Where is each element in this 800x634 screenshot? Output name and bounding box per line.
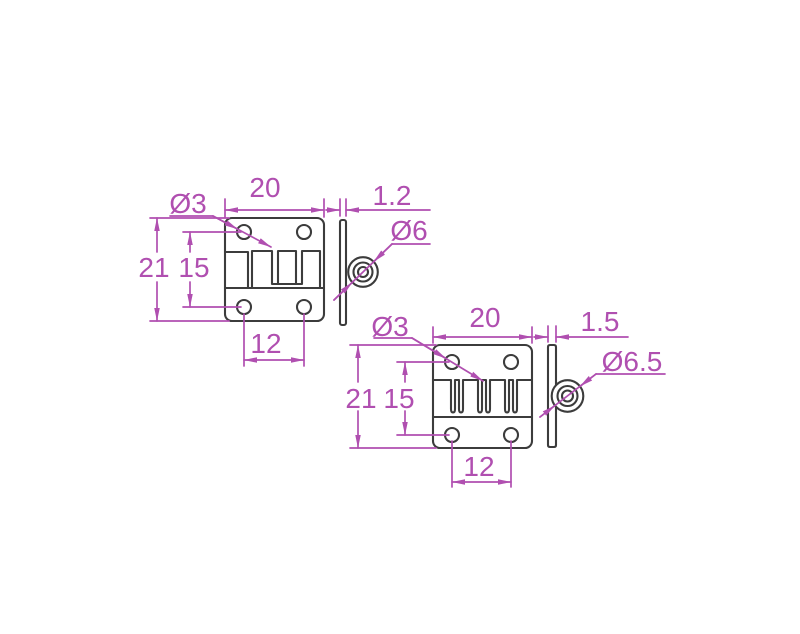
- hinge1-screw-hole: [297, 225, 311, 239]
- hinge2-hole-diameter-label: Ø3: [371, 311, 408, 342]
- hinge2-width-label: 20: [469, 302, 500, 333]
- hinge1-knuckle-lines: [225, 251, 324, 288]
- hinge2-knuckle-lines: [433, 380, 532, 417]
- hinge2-knuckle-diameter-label: Ø6.5: [602, 346, 663, 377]
- hinge2-thickness-label: 1.5: [581, 306, 620, 337]
- hinge2-pitch-vertical-label: 15: [383, 383, 414, 414]
- hinge2-side-view: [548, 345, 583, 447]
- hinge2-pitch-horizontal-label: 12: [463, 451, 494, 482]
- hinge1-pitch-horizontal-label: 12: [250, 328, 281, 359]
- hinge2-hole-leader-arrow: [412, 338, 446, 359]
- hinge1-leaf-side: [340, 220, 346, 325]
- hinge1-pitch-vertical-label: 15: [178, 252, 209, 283]
- hinge1-side-view: [340, 220, 378, 325]
- hinge1-front-view: [225, 218, 324, 321]
- hinge1-knuckle-diameter-label: Ø6: [390, 215, 427, 246]
- hinge2-screw-hole: [504, 428, 518, 442]
- hinge1-hole-diameter-label: Ø3: [169, 188, 206, 219]
- hinge2-screw-hole: [504, 355, 518, 369]
- technical-drawing: Ø3 20 1.2 Ø6 21 15 12 Ø3 20 1.5 Ø6.5 21 …: [0, 0, 800, 634]
- hinge2-barrel-leader-upper: [580, 374, 596, 386]
- hinge1-barrel-leader-lower: [334, 282, 352, 300]
- hinge1-width-label: 20: [249, 172, 280, 203]
- hinge2-height-label: 21: [345, 383, 376, 414]
- hinge1-thickness-label: 1.2: [373, 180, 412, 211]
- hinge1-barrel-leader-upper: [374, 244, 392, 262]
- hinge1-screw-hole: [297, 300, 311, 314]
- drawing-canvas: Ø3 20 1.2 Ø6 21 15 12 Ø3 20 1.5 Ø6.5 21 …: [0, 0, 800, 634]
- hinge1-plate-outline: [225, 218, 324, 321]
- hinge1-height-label: 21: [138, 252, 169, 283]
